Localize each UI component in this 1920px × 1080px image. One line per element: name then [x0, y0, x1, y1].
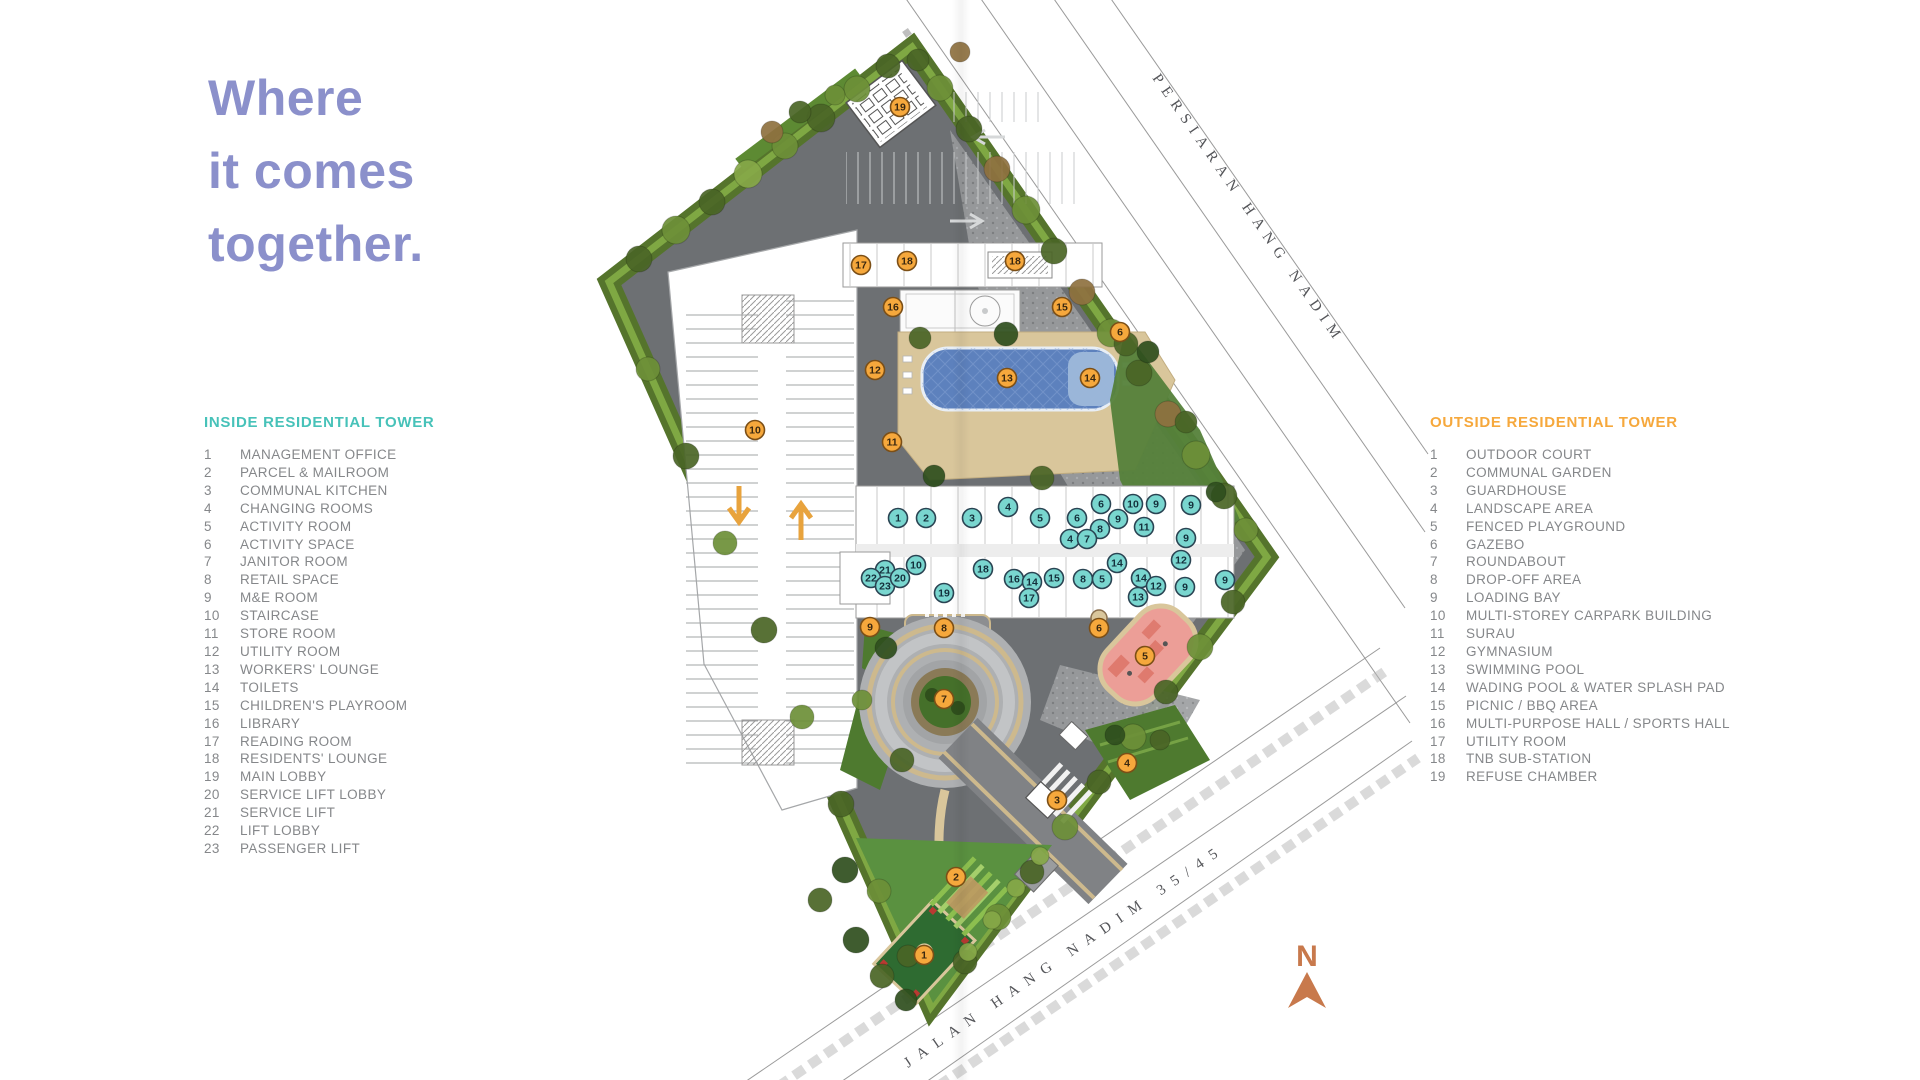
- legend-item-label: UTILITY ROOM: [240, 643, 341, 661]
- inside-marker-number: 20: [894, 573, 906, 585]
- legend-item: 17UTILITY ROOM: [1430, 733, 1810, 751]
- legend-item: 13SWIMMING POOL: [1430, 661, 1810, 679]
- tree-icon: [1137, 341, 1159, 363]
- tree-icon: [636, 357, 660, 381]
- legend-item-label: TNB SUB-STATION: [1466, 750, 1592, 768]
- legend-item: 2PARCEL & MAILROOM: [204, 464, 554, 482]
- legend-item-label: RETAIL SPACE: [240, 571, 339, 589]
- legend-item: 18TNB SUB-STATION: [1430, 750, 1810, 768]
- legend-item: 19MAIN LOBBY: [204, 768, 554, 786]
- legend-item-label: GUARDHOUSE: [1466, 482, 1567, 500]
- inside-marker-number: 2: [923, 513, 929, 525]
- legend-item-number: 11: [204, 625, 240, 643]
- tree-icon: [895, 989, 917, 1011]
- legend-item: 4CHANGING ROOMS: [204, 500, 554, 518]
- legend-item: 14WADING POOL & WATER SPLASH PAD: [1430, 679, 1810, 697]
- legend-item: 15CHILDREN'S PLAYROOM: [204, 697, 554, 715]
- tree-icon: [699, 189, 725, 215]
- inside-marker-number: 8: [1080, 574, 1086, 586]
- tree-icon: [673, 443, 699, 469]
- legend-item-number: 1: [204, 446, 240, 464]
- tree-icon: [832, 857, 858, 883]
- tree-icon: [1175, 411, 1197, 433]
- outside-marker-number: 5: [1142, 651, 1148, 663]
- tree-icon: [1221, 590, 1245, 614]
- legend-item-number: 6: [204, 536, 240, 554]
- legend-item-label: JANITOR ROOM: [240, 553, 348, 571]
- inside-marker-number: 9: [1188, 500, 1194, 512]
- outside-marker-number: 9: [867, 622, 873, 634]
- legend-item: 9LOADING BAY: [1430, 589, 1810, 607]
- tree-icon: [1052, 814, 1078, 840]
- outside-marker-number: 7: [941, 694, 947, 706]
- legend-item-number: 2: [204, 464, 240, 482]
- legend-item-number: 7: [204, 553, 240, 571]
- tree-icon: [1126, 360, 1152, 386]
- legend-item-label: REFUSE CHAMBER: [1466, 768, 1598, 786]
- legend-item-label: MULTI-PURPOSE HALL / SPORTS HALL: [1466, 715, 1730, 733]
- legend-item-label: UTILITY ROOM: [1466, 733, 1567, 751]
- title-line: together.: [208, 208, 424, 281]
- inside-marker-number: 11: [1138, 522, 1149, 534]
- legend-item-label: GAZEBO: [1466, 536, 1525, 554]
- tree-icon: [844, 76, 870, 102]
- legend-item-number: 15: [204, 697, 240, 715]
- inside-marker-number: 6: [1074, 513, 1080, 525]
- tree-icon: [1012, 196, 1040, 224]
- legend-item-label: DROP-OFF AREA: [1466, 571, 1581, 589]
- legend-item-label: SURAU: [1466, 625, 1515, 643]
- legend-item-label: CHILDREN'S PLAYROOM: [240, 697, 407, 715]
- outside-marker-number: 6: [1117, 327, 1123, 339]
- outside-marker-number: 18: [1009, 256, 1021, 268]
- inside-marker-number: 9: [1182, 582, 1188, 594]
- tree-icon: [1069, 279, 1095, 305]
- inside-marker-number: 19: [938, 588, 950, 600]
- legend-item-number: 12: [204, 643, 240, 661]
- legend-item-label: COMMUNAL KITCHEN: [240, 482, 388, 500]
- inside-marker-number: 14: [1111, 558, 1123, 570]
- outside-marker-number: 15: [1056, 302, 1068, 314]
- tree-icon: [1087, 770, 1111, 794]
- inside-marker-number: 10: [1127, 499, 1139, 511]
- legend-item: 8RETAIL SPACE: [204, 571, 554, 589]
- legend-item-label: SERVICE LIFT LOBBY: [240, 786, 386, 804]
- inside-marker-number: 7: [1084, 534, 1090, 546]
- inside-marker-number: 15: [1048, 573, 1060, 585]
- inside-marker-number: 6: [1098, 499, 1104, 511]
- legend-item-label: STORE ROOM: [240, 625, 336, 643]
- tree-icon: [734, 160, 762, 188]
- legend-item-label: PICNIC / BBQ AREA: [1466, 697, 1598, 715]
- legend-item: 12UTILITY ROOM: [204, 643, 554, 661]
- north-label: N: [1296, 940, 1318, 973]
- inside-marker-number: 17: [1023, 593, 1035, 605]
- legend-item: 9M&E ROOM: [204, 589, 554, 607]
- legend-item-number: 20: [204, 786, 240, 804]
- inside-marker-number: 9: [1222, 575, 1228, 587]
- legend-item: 7ROUNDABOUT: [1430, 553, 1810, 571]
- carpark-building: [668, 230, 857, 810]
- tree-icon: [1007, 879, 1025, 897]
- legend-item: 20SERVICE LIFT LOBBY: [204, 786, 554, 804]
- tree-icon: [761, 121, 783, 143]
- legend-item-label: CHANGING ROOMS: [240, 500, 373, 518]
- outside-marker-number: 19: [894, 102, 906, 114]
- legend-outside-header: OUTSIDE RESIDENTIAL TOWER: [1430, 414, 1810, 431]
- legend-item-label: WORKERS' LOUNGE: [240, 661, 379, 679]
- legend-item: 5ACTIVITY ROOM: [204, 518, 554, 536]
- legend-item: 12GYMNASIUM: [1430, 643, 1810, 661]
- tree-icon: [909, 327, 931, 349]
- legend-item-number: 4: [204, 500, 240, 518]
- tree-icon: [876, 54, 900, 78]
- outside-marker-number: 13: [1001, 373, 1013, 385]
- tree-icon: [1154, 680, 1178, 704]
- outside-marker-number: 14: [1084, 373, 1096, 385]
- legend-item: 22LIFT LOBBY: [204, 822, 554, 840]
- legend-item: 19REFUSE CHAMBER: [1430, 768, 1810, 786]
- legend-item-label: MAIN LOBBY: [240, 768, 327, 786]
- legend-item-number: 21: [204, 804, 240, 822]
- legend-item: 16LIBRARY: [204, 715, 554, 733]
- legend-item-label: MULTI-STOREY CARPARK BUILDING: [1466, 607, 1712, 625]
- tree-icon: [994, 322, 1018, 346]
- tree-icon: [1234, 518, 1258, 542]
- tree-icon: [1182, 441, 1210, 469]
- legend-item: 17READING ROOM: [204, 733, 554, 751]
- tree-icon: [1187, 634, 1213, 660]
- inside-marker-number: 4: [1005, 502, 1011, 514]
- legend-item-label: LOADING BAY: [1466, 589, 1561, 607]
- tree-icon: [1041, 238, 1067, 264]
- outside-marker-number: 16: [887, 302, 899, 314]
- legend-item-label: ACTIVITY SPACE: [240, 536, 355, 554]
- legend-item-label: RESIDENTS' LOUNGE: [240, 750, 387, 768]
- legend-inside-header: INSIDE RESIDENTIAL TOWER: [204, 414, 554, 431]
- legend-item-number: 16: [204, 715, 240, 733]
- inside-marker-number: 16: [1008, 574, 1020, 586]
- title-line: it comes: [208, 135, 424, 208]
- road-label-persiaran: PERSIARAN HANG NADIM: [1149, 71, 1348, 347]
- legend-item-number: 19: [204, 768, 240, 786]
- legend-item-label: SERVICE LIFT: [240, 804, 335, 822]
- legend-item-number: 3: [204, 482, 240, 500]
- legend-item: 4LANDSCAPE AREA: [1430, 500, 1810, 518]
- legend-item-label: ROUNDABOUT: [1466, 553, 1566, 571]
- inside-marker-number: 12: [1150, 581, 1162, 593]
- legend-item: 23PASSENGER LIFT: [204, 840, 554, 858]
- legend-item-label: PASSENGER LIFT: [240, 840, 360, 858]
- inside-marker-number: 12: [1175, 555, 1187, 567]
- legend-item-label: GYMNASIUM: [1466, 643, 1553, 661]
- outside-marker-number: 3: [1054, 795, 1060, 807]
- tree-icon: [890, 748, 914, 772]
- legend-item: 3GUARDHOUSE: [1430, 482, 1810, 500]
- site-plan: PERSIARAN HANG NADIM JALAN HANG NADIM 35…: [580, 0, 1460, 1080]
- tree-icon: [1031, 847, 1049, 865]
- inside-marker-number: 21: [879, 565, 891, 577]
- outside-marker-number: 2: [953, 872, 959, 884]
- inside-marker-number: 5: [1099, 574, 1105, 586]
- inside-marker-number: 1: [895, 513, 901, 525]
- north-compass: N: [1288, 940, 1326, 1008]
- legend-item-number: 18: [204, 750, 240, 768]
- legend-item: 6GAZEBO: [1430, 536, 1810, 554]
- legend-item: 3COMMUNAL KITCHEN: [204, 482, 554, 500]
- inside-marker-number: 3: [969, 513, 975, 525]
- outside-marker-number: 18: [901, 256, 913, 268]
- legend-item: 21SERVICE LIFT: [204, 804, 554, 822]
- legend-item-label: TOILETS: [240, 679, 299, 697]
- legend-item-number: 13: [204, 661, 240, 679]
- legend-item: 15PICNIC / BBQ AREA: [1430, 697, 1810, 715]
- tree-icon: [843, 927, 869, 953]
- legend-item-label: LIBRARY: [240, 715, 300, 733]
- tree-icon: [927, 75, 953, 101]
- legend-item: 5FENCED PLAYGROUND: [1430, 518, 1810, 536]
- tree-icon: [1030, 466, 1054, 490]
- legend-item: 11STORE ROOM: [204, 625, 554, 643]
- legend-item: 10STAIRCASE: [204, 607, 554, 625]
- legend-item-number: 22: [204, 822, 240, 840]
- inside-marker-number: 4: [1067, 534, 1073, 546]
- page-title: Where it comes together.: [208, 62, 424, 281]
- tree-icon: [751, 617, 777, 643]
- legend-item-number: 8: [204, 571, 240, 589]
- outside-marker-number: 1: [921, 950, 927, 962]
- tree-icon: [626, 246, 652, 272]
- legend-item-number: 17: [204, 733, 240, 751]
- legend-item: 10MULTI-STOREY CARPARK BUILDING: [1430, 607, 1810, 625]
- page-fold: [952, 0, 970, 1080]
- outside-marker-number: 12: [869, 365, 881, 377]
- tree-icon: [808, 888, 832, 912]
- tree-icon: [790, 705, 814, 729]
- legend-item-label: PARCEL & MAILROOM: [240, 464, 389, 482]
- legend-item-label: FENCED PLAYGROUND: [1466, 518, 1626, 536]
- legend-inside-list: 1MANAGEMENT OFFICE2PARCEL & MAILROOM3COM…: [204, 446, 554, 858]
- inside-marker-number: 8: [1097, 524, 1103, 536]
- legend-item: 16MULTI-PURPOSE HALL / SPORTS HALL: [1430, 715, 1810, 733]
- tree-icon: [662, 216, 690, 244]
- inside-marker-number: 5: [1037, 513, 1043, 525]
- legend-inside: INSIDE RESIDENTIAL TOWER 1MANAGEMENT OFF…: [204, 414, 554, 858]
- legend-item: 14TOILETS: [204, 679, 554, 697]
- inside-marker-number: 18: [977, 564, 989, 576]
- tree-icon: [870, 964, 894, 988]
- outside-marker-number: 4: [1124, 758, 1130, 770]
- legend-item-label: STAIRCASE: [240, 607, 319, 625]
- outside-marker-number: 10: [749, 425, 761, 437]
- outside-marker-number: 6: [1096, 623, 1102, 635]
- legend-item-number: 23: [204, 840, 240, 858]
- legend-item-number: 9: [204, 589, 240, 607]
- legend-item-label: M&E ROOM: [240, 589, 318, 607]
- north-arrow-icon: [1288, 972, 1326, 1008]
- tree-icon: [1206, 482, 1226, 502]
- legend-item-label: MANAGEMENT OFFICE: [240, 446, 397, 464]
- inside-marker-number: 13: [1132, 592, 1144, 604]
- tree-icon: [923, 465, 945, 487]
- legend-item-number: 14: [204, 679, 240, 697]
- legend-item: 11SURAU: [1430, 625, 1810, 643]
- legend-item-label: OUTDOOR COURT: [1466, 446, 1592, 464]
- inside-marker-number: 9: [1153, 499, 1159, 511]
- title-line: Where: [208, 62, 424, 135]
- outside-marker-number: 8: [941, 623, 947, 635]
- tree-icon: [789, 101, 811, 123]
- legend-item: 8DROP-OFF AREA: [1430, 571, 1810, 589]
- legend-item-label: LANDSCAPE AREA: [1466, 500, 1593, 518]
- legend-item-number: 10: [204, 607, 240, 625]
- legend-item: 18RESIDENTS' LOUNGE: [204, 750, 554, 768]
- legend-item: 7JANITOR ROOM: [204, 553, 554, 571]
- legend-item-label: READING ROOM: [240, 733, 352, 751]
- legend-item: 13WORKERS' LOUNGE: [204, 661, 554, 679]
- outside-marker-number: 17: [855, 260, 867, 272]
- outside-marker-number: 11: [886, 437, 897, 449]
- legend-outside: OUTSIDE RESIDENTIAL TOWER 1OUTDOOR COURT…: [1430, 414, 1810, 786]
- legend-item-label: LIFT LOBBY: [240, 822, 320, 840]
- tree-icon: [828, 791, 854, 817]
- inside-marker-number: 9: [1183, 533, 1189, 545]
- inside-marker-number: 23: [879, 581, 891, 593]
- tree-icon: [1105, 725, 1125, 745]
- legend-item: 1OUTDOOR COURT: [1430, 446, 1810, 464]
- legend-item: 6ACTIVITY SPACE: [204, 536, 554, 554]
- tree-icon: [807, 104, 835, 132]
- tree-icon: [825, 85, 845, 105]
- tree-icon: [852, 690, 872, 710]
- tree-icon: [1150, 730, 1170, 750]
- tree-icon: [713, 531, 737, 555]
- legend-item-label: WADING POOL & WATER SPLASH PAD: [1466, 679, 1725, 697]
- inside-marker-number: 14: [1026, 577, 1038, 589]
- tree-icon: [907, 49, 929, 71]
- legend-item: 2COMMUNAL GARDEN: [1430, 464, 1810, 482]
- legend-item-label: COMMUNAL GARDEN: [1466, 464, 1612, 482]
- tree-icon: [867, 879, 891, 903]
- legend-outside-list: 1OUTDOOR COURT2COMMUNAL GARDEN3GUARDHOUS…: [1430, 446, 1810, 786]
- legend-item-label: SWIMMING POOL: [1466, 661, 1584, 679]
- tree-icon: [875, 637, 897, 659]
- legend-item-number: 5: [204, 518, 240, 536]
- tree-icon: [984, 156, 1010, 182]
- inside-marker-number: 14: [1135, 573, 1147, 585]
- inside-marker-number: 9: [1115, 514, 1121, 526]
- legend-item-label: ACTIVITY ROOM: [240, 518, 351, 536]
- legend-item: 1MANAGEMENT OFFICE: [204, 446, 554, 464]
- tree-icon: [983, 911, 1001, 929]
- inside-marker-number: 10: [910, 560, 922, 572]
